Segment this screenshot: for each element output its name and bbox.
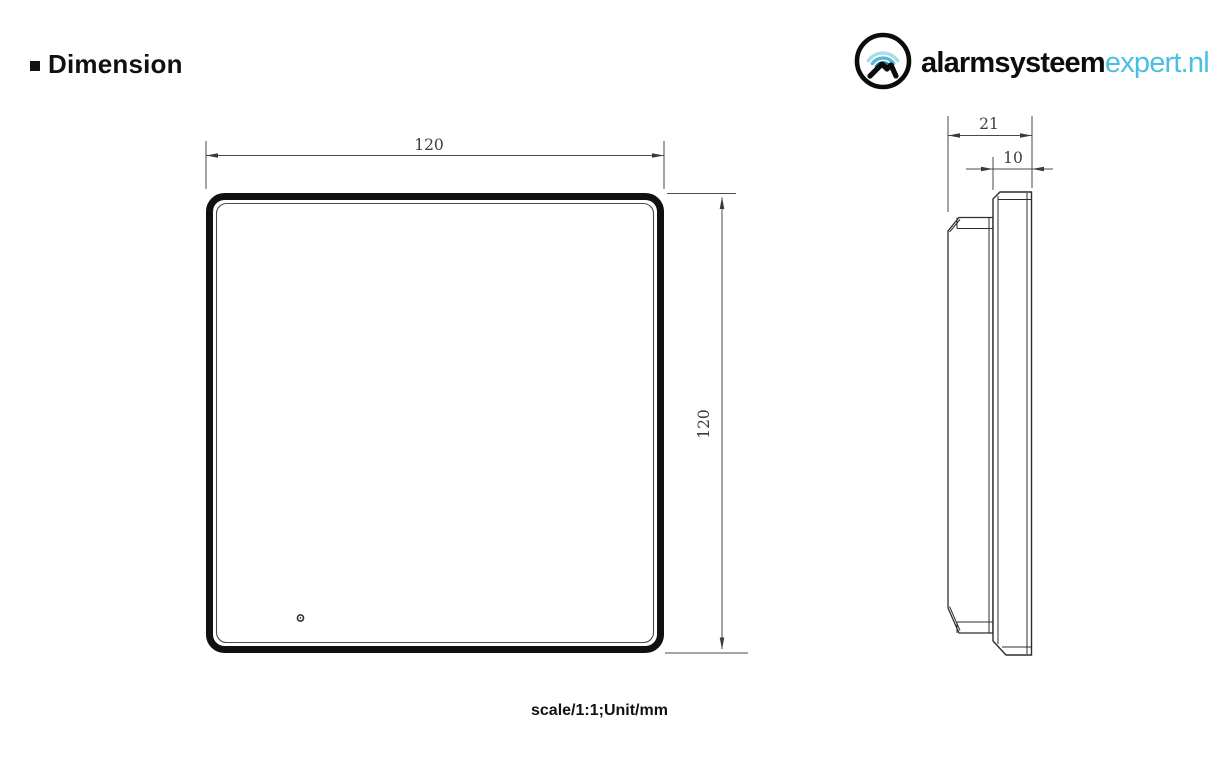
side-back-plate (948, 218, 993, 634)
front-width-dim-label: 120 (414, 136, 444, 154)
side-total-depth-dim-label: 21 (979, 115, 999, 133)
side-front-depth-dim-label: 10 (1003, 149, 1023, 167)
front-panel-outline (210, 197, 661, 650)
side-view: 21 10 (948, 115, 1053, 655)
side-front-block (993, 192, 1032, 655)
front-view: 120 120 (206, 136, 748, 653)
dimension-drawing: 120 120 (0, 0, 1211, 779)
front-height-dim-label: 120 (695, 409, 713, 439)
scale-note: scale/1:1;Unit/mm (531, 702, 668, 720)
